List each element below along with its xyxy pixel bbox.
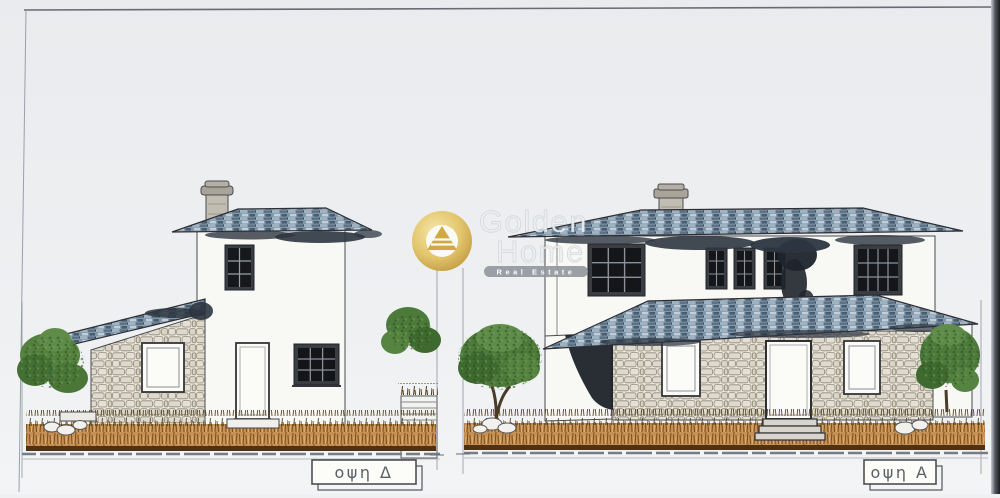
house-a-window-left bbox=[662, 341, 700, 396]
elevation-canvas: οψη Δ bbox=[0, 0, 1000, 494]
house-a-window-trio bbox=[706, 248, 785, 289]
house-d-upper-window bbox=[225, 245, 254, 290]
golden-home-logo-icon bbox=[412, 211, 472, 271]
house-d-dark-window bbox=[292, 344, 341, 386]
house-d-stone-window bbox=[142, 343, 184, 392]
house-a-window-right bbox=[844, 341, 880, 394]
brand-tagline: Real Estate bbox=[497, 268, 576, 277]
scan-edge bbox=[991, 0, 1000, 494]
watermark: Golden Home Real Estate bbox=[412, 204, 588, 277]
view-d-label: οψη Δ bbox=[334, 463, 393, 482]
view-a-label: οψη Α bbox=[870, 463, 929, 482]
house-d-wall bbox=[197, 229, 345, 434]
house-d-door bbox=[236, 343, 269, 419]
door-step-d bbox=[227, 419, 279, 428]
house-a-window-upper-left bbox=[588, 244, 645, 296]
house-a-window-upper-right bbox=[854, 245, 902, 295]
stone-slab-d bbox=[60, 412, 96, 421]
entry-steps bbox=[755, 419, 825, 440]
drawing-sheet: οψη Δ bbox=[0, 0, 1000, 494]
brand-name-line2: Home bbox=[496, 234, 585, 269]
house-a-door bbox=[766, 341, 811, 419]
